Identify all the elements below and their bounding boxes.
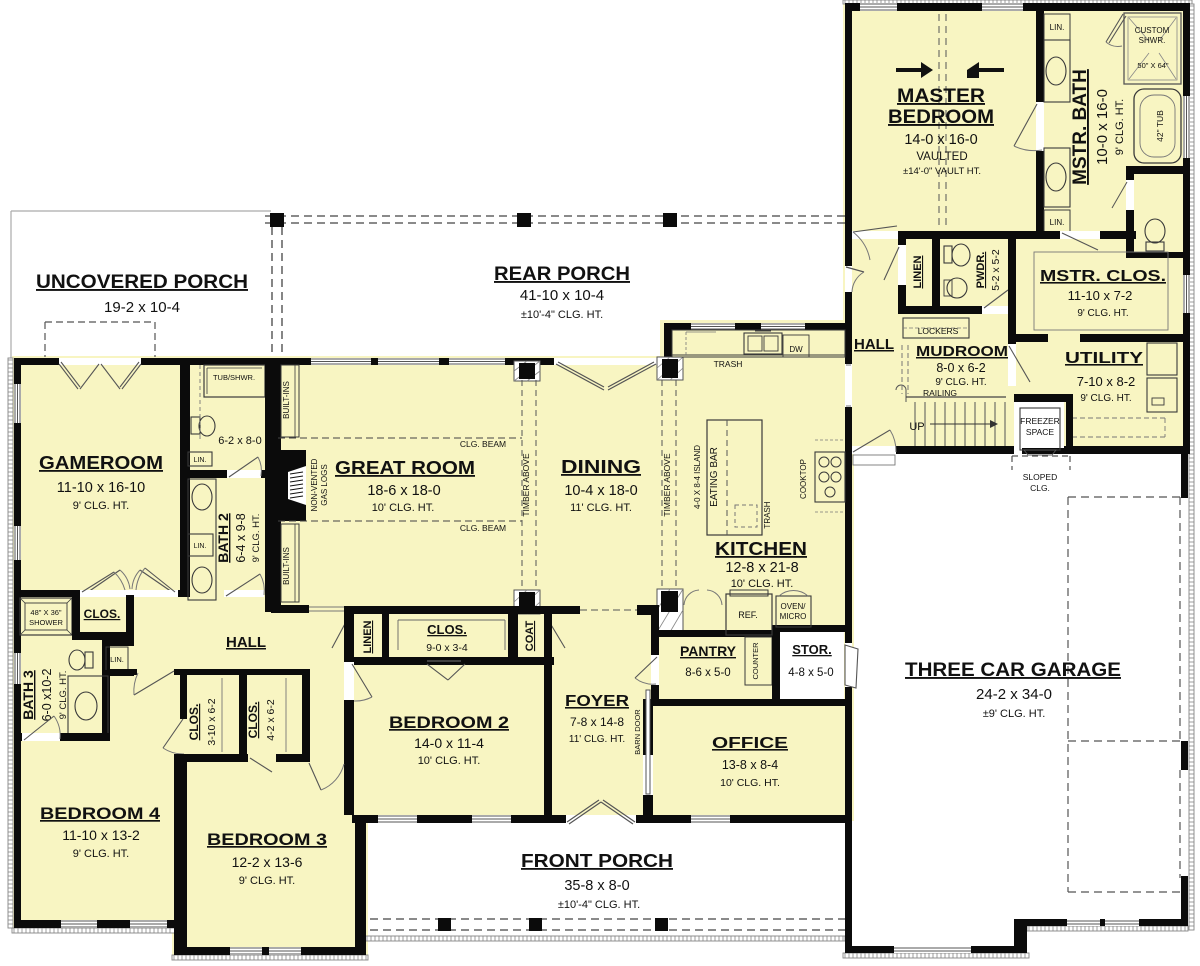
svg-text:TRASH: TRASH: [714, 359, 743, 369]
svg-text:BEDROOM 3: BEDROOM 3: [207, 830, 327, 849]
svg-text:9' CLG. HT.: 9' CLG. HT.: [1114, 99, 1126, 156]
svg-text:14-0 x 16-0: 14-0 x 16-0: [904, 132, 977, 148]
svg-text:CLOS.: CLOS.: [187, 704, 201, 741]
svg-text:LINEN: LINEN: [912, 255, 924, 288]
svg-text:HALL: HALL: [226, 634, 266, 651]
svg-text:GAMEROOM: GAMEROOM: [39, 453, 163, 473]
svg-text:11-10 x 13-2: 11-10 x 13-2: [62, 827, 140, 843]
svg-text:KITCHEN: KITCHEN: [715, 539, 807, 559]
svg-text:24-2 x 34-0: 24-2 x 34-0: [976, 686, 1052, 703]
svg-text:50" X 64": 50" X 64": [1137, 61, 1169, 70]
svg-text:NON-VENTED: NON-VENTED: [310, 458, 319, 511]
svg-text:LIN.: LIN.: [1050, 23, 1065, 32]
svg-text:LIN.: LIN.: [1050, 218, 1065, 227]
svg-text:9' CLG. HT.: 9' CLG. HT.: [1080, 393, 1131, 404]
svg-text:10' CLG. HT.: 10' CLG. HT.: [731, 578, 794, 590]
svg-text:SPACE: SPACE: [1026, 427, 1055, 437]
svg-text:BUILT-INS: BUILT-INS: [282, 547, 291, 585]
svg-text:18-6 x 18-0: 18-6 x 18-0: [367, 483, 440, 499]
svg-text:UTILITY: UTILITY: [1065, 350, 1143, 367]
svg-text:10-4 x 18-0: 10-4 x 18-0: [564, 483, 637, 499]
svg-text:±9' CLG. HT.: ±9' CLG. HT.: [983, 708, 1046, 720]
svg-text:9' CLG. HT.: 9' CLG. HT.: [73, 848, 130, 860]
svg-text:11-10 x 7-2: 11-10 x 7-2: [1068, 288, 1133, 303]
svg-text:HALL: HALL: [854, 336, 894, 353]
svg-text:±14'-0" VAULT HT.: ±14'-0" VAULT HT.: [903, 166, 981, 177]
svg-text:±10'-4" CLG. HT.: ±10'-4" CLG. HT.: [521, 309, 603, 321]
svg-text:CLG. BEAM: CLG. BEAM: [460, 439, 506, 449]
svg-text:10' CLG. HT.: 10' CLG. HT.: [418, 755, 481, 767]
svg-text:EATING BAR: EATING BAR: [709, 447, 720, 507]
svg-text:RAILING: RAILING: [923, 388, 957, 398]
svg-text:DW: DW: [789, 345, 803, 354]
svg-text:BATH 2: BATH 2: [215, 513, 231, 563]
svg-text:COUNTER: COUNTER: [751, 642, 760, 680]
svg-text:CLOS.: CLOS.: [246, 702, 260, 739]
svg-text:PWDR.: PWDR.: [975, 252, 987, 289]
svg-text:9' CLG. HT.: 9' CLG. HT.: [73, 500, 130, 512]
svg-text:10-0 x 16-0: 10-0 x 16-0: [1094, 89, 1111, 165]
svg-text:13-8 x 8-4: 13-8 x 8-4: [722, 758, 778, 772]
svg-text:10' CLG. HT.: 10' CLG. HT.: [720, 777, 780, 789]
svg-text:4-2 x 6-2: 4-2 x 6-2: [265, 699, 277, 741]
svg-text:48" X 36": 48" X 36": [30, 608, 62, 617]
svg-text:6-0 x10-2: 6-0 x10-2: [40, 669, 54, 722]
svg-text:VAULTED: VAULTED: [916, 151, 967, 163]
svg-text:GAS LOGS: GAS LOGS: [320, 464, 329, 505]
svg-text:FRONT PORCH: FRONT PORCH: [521, 851, 673, 871]
svg-text:COAT: COAT: [524, 621, 536, 652]
svg-text:TIMBER ABOVE: TIMBER ABOVE: [521, 453, 531, 517]
svg-text:SLOPED: SLOPED: [1023, 472, 1058, 482]
svg-text:CLOS.: CLOS.: [84, 607, 121, 621]
svg-text:8-6 x 5-0: 8-6 x 5-0: [685, 667, 730, 679]
svg-text:COOKTOP: COOKTOP: [799, 459, 808, 499]
svg-text:BARN DOOR: BARN DOOR: [633, 709, 642, 755]
svg-text:4-8 x 5-0: 4-8 x 5-0: [788, 667, 833, 679]
svg-text:8-0 x 6-2: 8-0 x 6-2: [936, 361, 985, 375]
svg-text:42" TUB: 42" TUB: [1155, 110, 1165, 142]
svg-text:MSTR. CLOS.: MSTR. CLOS.: [1040, 268, 1166, 285]
svg-text:14-0 x 11-4: 14-0 x 11-4: [414, 735, 484, 751]
svg-text:LOCKERS: LOCKERS: [918, 326, 959, 336]
svg-text:FREEZER: FREEZER: [1020, 416, 1060, 426]
svg-text:PANTRY: PANTRY: [680, 643, 737, 659]
svg-text:BEDROOM: BEDROOM: [888, 107, 994, 128]
svg-text:BEDROOM 2: BEDROOM 2: [389, 713, 509, 732]
svg-text:CLOS.: CLOS.: [427, 622, 467, 637]
svg-text:MSTR. BATH: MSTR. BATH: [1070, 69, 1091, 185]
svg-text:BEDROOM 4: BEDROOM 4: [40, 804, 161, 823]
svg-text:12-8 x 21-8: 12-8 x 21-8: [725, 560, 798, 576]
svg-text:MICRO: MICRO: [780, 612, 807, 621]
svg-text:9' CLG. HT.: 9' CLG. HT.: [58, 671, 69, 720]
svg-text:DINING: DINING: [561, 457, 641, 477]
svg-text:MASTER: MASTER: [897, 86, 985, 107]
svg-text:9' CLG. HT.: 9' CLG. HT.: [239, 875, 296, 887]
svg-text:STOR.: STOR.: [792, 642, 832, 657]
svg-text:9' CLG. HT.: 9' CLG. HT.: [935, 377, 986, 388]
svg-text:6-2 x 8-0: 6-2 x 8-0: [218, 435, 261, 447]
svg-text:CUSTOM: CUSTOM: [1135, 26, 1170, 35]
svg-text:5-2 x 5-2: 5-2 x 5-2: [990, 249, 1002, 291]
svg-text:19-2 x 10-4: 19-2 x 10-4: [104, 299, 180, 316]
svg-text:TUB/SHWR.: TUB/SHWR.: [213, 373, 255, 382]
svg-text:SHWR.: SHWR.: [1139, 36, 1166, 45]
svg-text:THREE CAR GARAGE: THREE CAR GARAGE: [905, 660, 1121, 681]
svg-text:REF.: REF.: [738, 610, 758, 620]
svg-text:CLG. BEAM: CLG. BEAM: [460, 523, 506, 533]
svg-text:6-4 x 9-8: 6-4 x 9-8: [234, 513, 248, 562]
svg-text:MUDROOM: MUDROOM: [916, 343, 1008, 360]
svg-text:9' CLG. HT.: 9' CLG. HT.: [1077, 308, 1128, 319]
svg-text:REAR PORCH: REAR PORCH: [494, 264, 630, 285]
svg-text:11-10 x 16-10: 11-10 x 16-10: [57, 480, 145, 496]
svg-text:LIN.: LIN.: [194, 457, 207, 464]
svg-text:UNCOVERED PORCH: UNCOVERED PORCH: [36, 272, 248, 293]
svg-text:9-0 x 3-4: 9-0 x 3-4: [426, 642, 468, 654]
svg-text:TIMBER ABOVE: TIMBER ABOVE: [662, 453, 672, 517]
svg-text:FOYER: FOYER: [565, 693, 630, 710]
svg-text:BUILT-INS: BUILT-INS: [282, 381, 291, 419]
svg-text:LINEN: LINEN: [362, 620, 374, 653]
svg-text:LIN.: LIN.: [194, 543, 207, 550]
svg-text:LIN.: LIN.: [110, 655, 124, 664]
svg-text:11' CLG. HT.: 11' CLG. HT.: [570, 502, 632, 514]
svg-text:CLG.: CLG.: [1030, 483, 1050, 493]
svg-text:7-8 x 14-8: 7-8 x 14-8: [570, 715, 624, 729]
svg-text:OFFICE: OFFICE: [712, 735, 788, 752]
svg-text:4-0 X 8-4 ISLAND: 4-0 X 8-4 ISLAND: [693, 445, 702, 509]
svg-text:SHOWER: SHOWER: [29, 618, 63, 627]
svg-text:±10'-4" CLG. HT.: ±10'-4" CLG. HT.: [558, 899, 640, 911]
svg-text:BATH 3: BATH 3: [20, 670, 36, 720]
svg-text:9' CLG. HT.: 9' CLG. HT.: [251, 514, 262, 563]
svg-text:35-8 x 8-0: 35-8 x 8-0: [564, 878, 629, 894]
svg-text:UP: UP: [909, 421, 924, 433]
svg-text:OVEN/: OVEN/: [781, 602, 807, 611]
svg-text:12-2 x 13-6: 12-2 x 13-6: [232, 854, 303, 870]
svg-text:11' CLG. HT.: 11' CLG. HT.: [569, 734, 625, 745]
svg-text:3-10 x 6-2: 3-10 x 6-2: [206, 698, 218, 745]
svg-text:TRASH: TRASH: [763, 501, 772, 528]
svg-text:10' CLG. HT.: 10' CLG. HT.: [372, 502, 435, 514]
svg-text:41-10 x 10-4: 41-10 x 10-4: [520, 287, 604, 304]
svg-text:7-10 x 8-2: 7-10 x 8-2: [1077, 374, 1136, 389]
svg-text:GREAT ROOM: GREAT ROOM: [335, 458, 475, 478]
